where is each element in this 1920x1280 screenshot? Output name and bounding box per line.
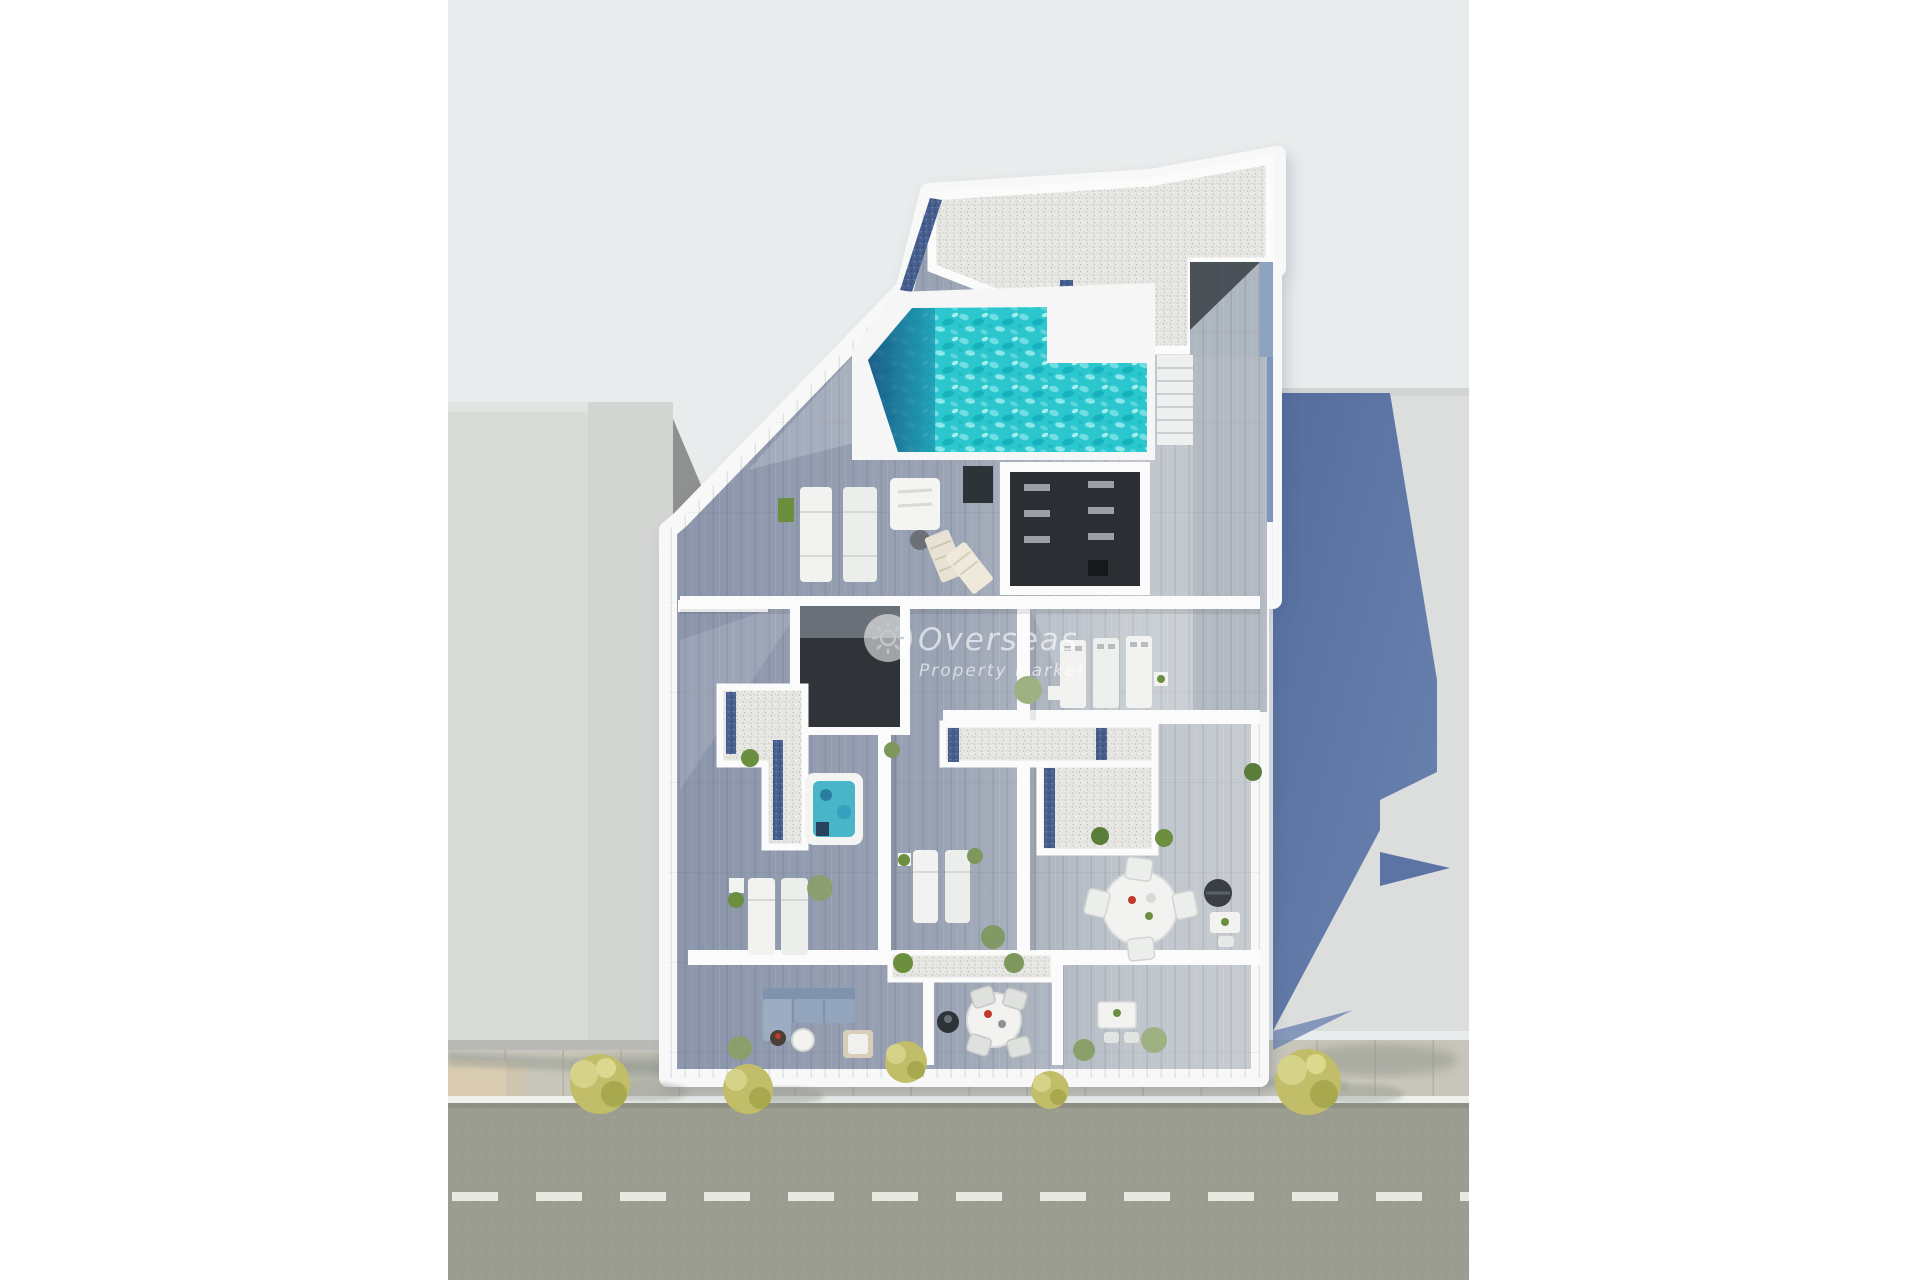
potted-plant [741,749,759,767]
shrub [1004,953,1024,973]
side-table [729,878,744,893]
chair [1124,1032,1139,1043]
shrub [1091,827,1109,845]
road [448,1103,1469,1280]
pool-stairs [1157,355,1193,445]
potted-plant [898,854,910,866]
planter-box [778,498,794,522]
coffee-table [792,1029,814,1051]
neighbor-building-right [1273,388,1469,1050]
corridor-blue-wall [1260,262,1273,357]
gravel-strip-bottom [890,953,1053,980]
stairwell-opening [1000,462,1150,595]
potted-plant [807,875,833,901]
corridor-blue-wall [1267,357,1273,522]
photo-render: Overseas Property Market [448,0,1469,1280]
entry-corridor [1190,262,1273,357]
towel-bench [890,478,940,530]
main-building [658,140,1298,1090]
watermark-tagline: Property Market [919,661,1086,681]
potted-plant [967,848,983,864]
shrub [1155,829,1173,847]
potted-plant [1073,1039,1095,1061]
shrub [1244,763,1262,781]
side-corridor [1193,357,1273,712]
potted-plant [728,1036,752,1060]
sun-logo-icon [864,614,912,662]
chair [1104,1032,1119,1043]
tree [885,1041,927,1083]
render-canvas: Overseas Property Market [0,0,1920,1280]
tree [1031,1071,1069,1109]
potted-plant [728,892,744,908]
floorplan-illustration: Overseas Property Market [448,0,1469,1280]
potted-plant [884,742,900,758]
shrub [893,953,913,973]
ottoman [843,1030,873,1058]
watermark-brand: Overseas [918,622,1079,658]
potted-plant [981,925,1005,949]
potted-plant [1141,1027,1167,1053]
side-table [1048,686,1062,700]
jacuzzi [805,773,863,845]
pool-mat [963,466,993,503]
